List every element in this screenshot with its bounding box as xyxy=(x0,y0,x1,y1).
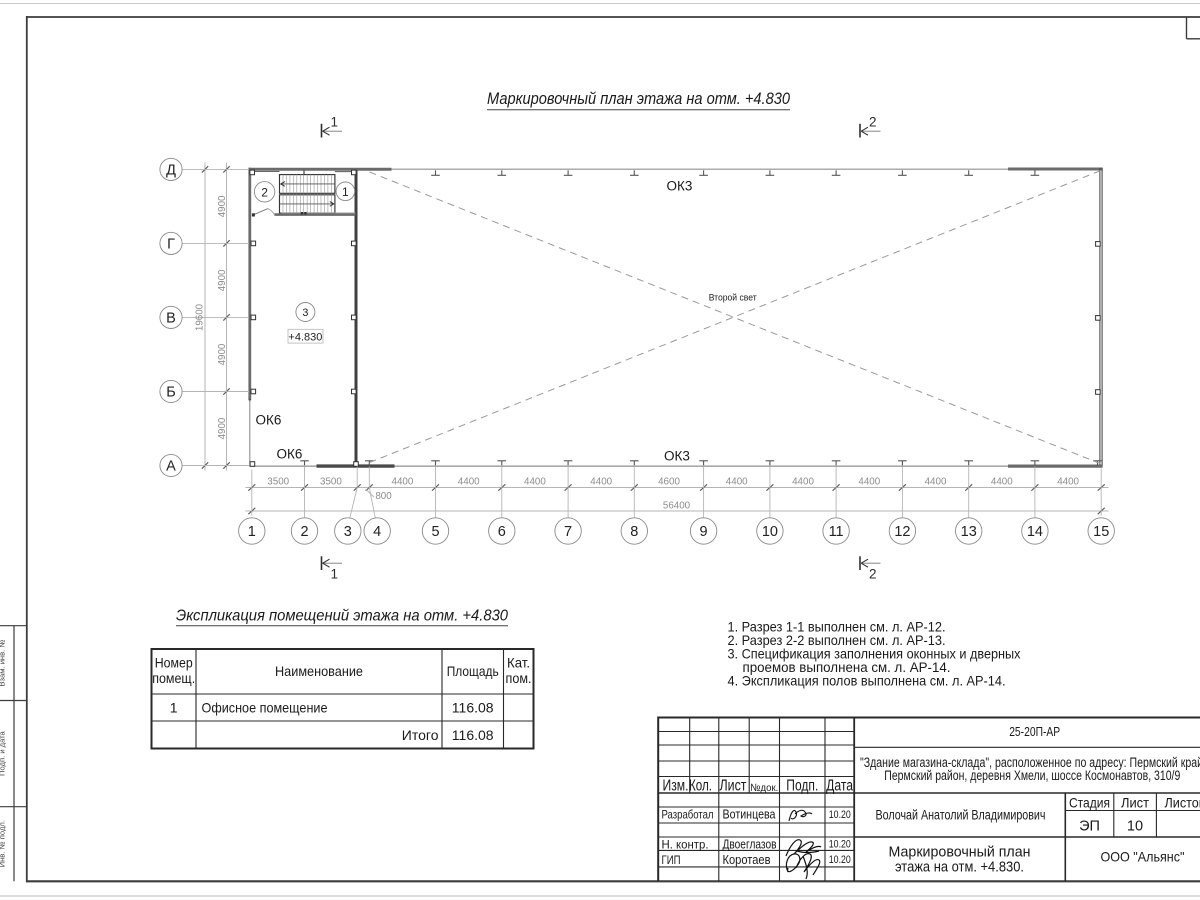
svg-text:4900: 4900 xyxy=(217,417,228,439)
svg-text:Офисное помещение: Офисное помещение xyxy=(202,700,328,716)
svg-text:Площадь: Площадь xyxy=(447,663,499,679)
svg-text:Вотинцева: Вотинцева xyxy=(723,807,777,822)
svg-text:4400: 4400 xyxy=(590,476,612,487)
svg-text:800: 800 xyxy=(375,491,392,502)
svg-text:Инв. № подл.: Инв. № подл. xyxy=(0,820,7,867)
svg-text:Изм.: Изм. xyxy=(663,777,689,794)
svg-text:4400: 4400 xyxy=(726,476,748,487)
svg-text:Волочай Анатолий Владимирович: Волочай Анатолий Владимирович xyxy=(876,807,1046,822)
svg-text:12: 12 xyxy=(894,524,910,540)
svg-text:4400: 4400 xyxy=(1057,476,1079,487)
svg-text:1: 1 xyxy=(248,524,256,540)
svg-text:10: 10 xyxy=(1127,819,1143,835)
svg-text:Экспликация помещений этажа на: Экспликация помещений этажа на отм. +4.8… xyxy=(176,608,508,625)
svg-text:№док.: №док. xyxy=(750,782,778,794)
svg-text:1: 1 xyxy=(342,185,349,199)
svg-text:4600: 4600 xyxy=(658,476,680,487)
svg-text:Разработал: Разработал xyxy=(662,808,714,822)
svg-text:4: 4 xyxy=(373,524,381,540)
svg-text:Б: Б xyxy=(166,385,176,401)
svg-text:4900: 4900 xyxy=(217,195,228,217)
svg-text:Дата: Дата xyxy=(826,777,853,794)
svg-text:4900: 4900 xyxy=(217,343,228,365)
svg-text:56400: 56400 xyxy=(663,500,691,511)
svg-text:этажа на отм. +4.830.: этажа на отм. +4.830. xyxy=(895,858,1024,875)
svg-text:4400: 4400 xyxy=(858,476,880,487)
svg-text:4400: 4400 xyxy=(524,476,546,487)
svg-text:4. Экспликация полов выполнена: 4. Экспликация полов выполнена см. л. АР… xyxy=(728,674,1006,689)
svg-text:Подп. и дата: Подп. и дата xyxy=(0,730,7,776)
svg-text:Г: Г xyxy=(167,237,175,253)
svg-text:Лист: Лист xyxy=(1121,794,1150,810)
svg-text:Наименование: Наименование xyxy=(275,663,363,679)
svg-text:116.08: 116.08 xyxy=(452,727,494,743)
svg-text:3: 3 xyxy=(302,307,308,319)
svg-text:4400: 4400 xyxy=(392,476,414,487)
svg-text:4400: 4400 xyxy=(925,476,947,487)
svg-text:4900: 4900 xyxy=(217,269,228,291)
svg-text:9: 9 xyxy=(700,524,708,540)
svg-text:4400: 4400 xyxy=(792,476,814,487)
svg-text:14: 14 xyxy=(1027,524,1043,540)
svg-text:3500: 3500 xyxy=(267,476,289,487)
svg-text:3: 3 xyxy=(344,524,352,540)
svg-text:116.08: 116.08 xyxy=(452,700,494,716)
svg-text:ОК6: ОК6 xyxy=(256,413,282,428)
svg-text:Подп.: Подп. xyxy=(786,777,818,794)
svg-text:1: 1 xyxy=(170,700,178,716)
svg-text:Двоеглазов: Двоеглазов xyxy=(723,837,777,852)
svg-text:7: 7 xyxy=(564,524,572,540)
svg-text:Н. контр.: Н. контр. xyxy=(662,837,709,851)
svg-text:1: 1 xyxy=(330,566,338,581)
svg-text:Кат.: Кат. xyxy=(507,656,530,671)
svg-text:2: 2 xyxy=(300,524,308,540)
svg-text:15: 15 xyxy=(1093,524,1109,540)
svg-text:ОК6: ОК6 xyxy=(277,446,303,461)
svg-text:3500: 3500 xyxy=(320,476,342,487)
svg-text:Пермский район, деревня Хмели,: Пермский район, деревня Хмели, шоссе Кос… xyxy=(884,768,1180,783)
svg-text:4400: 4400 xyxy=(991,476,1013,487)
svg-text:2: 2 xyxy=(869,115,877,130)
svg-text:2: 2 xyxy=(261,185,268,199)
svg-text:Листов: Листов xyxy=(1165,794,1200,810)
svg-text:ООО "Альянс": ООО "Альянс" xyxy=(1101,848,1185,864)
svg-text:Кол.: Кол. xyxy=(689,777,712,794)
svg-text:Маркировочный план этажа на от: Маркировочный план этажа на отм. +4.830 xyxy=(487,90,790,108)
svg-text:Второй свет: Второй свет xyxy=(709,292,758,302)
svg-text:4400: 4400 xyxy=(458,476,480,487)
svg-text:1: 1 xyxy=(330,115,338,130)
svg-text:Номер: Номер xyxy=(155,656,193,671)
svg-text:В: В xyxy=(166,311,176,327)
svg-text:13: 13 xyxy=(961,524,977,540)
svg-text:Коротаев: Коротаев xyxy=(723,852,771,867)
svg-text:10.20: 10.20 xyxy=(829,854,851,866)
svg-text:8: 8 xyxy=(630,524,638,540)
svg-text:2: 2 xyxy=(869,566,877,581)
svg-text:Взам. инв. №: Взам. инв. № xyxy=(0,639,7,686)
svg-text:10.20: 10.20 xyxy=(829,839,851,851)
svg-text:5: 5 xyxy=(431,524,439,540)
svg-text:Лист: Лист xyxy=(720,777,747,794)
svg-text:ОК3: ОК3 xyxy=(664,449,690,464)
svg-text:10: 10 xyxy=(762,524,778,540)
svg-text:А: А xyxy=(166,459,176,475)
svg-text:6: 6 xyxy=(498,524,506,540)
svg-text:ЭП: ЭП xyxy=(1079,819,1100,835)
svg-text:11: 11 xyxy=(829,524,844,540)
svg-text:25-20П-АР: 25-20П-АР xyxy=(1009,725,1060,739)
svg-text:+4.830: +4.830 xyxy=(288,332,322,344)
svg-text:10.20: 10.20 xyxy=(829,809,851,821)
svg-text:ГИП: ГИП xyxy=(662,853,681,867)
svg-text:пом.: пом. xyxy=(506,671,532,686)
svg-text:ОК3: ОК3 xyxy=(667,179,693,194)
svg-text:Итого: Итого xyxy=(402,727,439,743)
svg-text:Д: Д xyxy=(166,163,176,179)
svg-text:помещ.: помещ. xyxy=(152,671,195,686)
svg-text:Стадия: Стадия xyxy=(1069,794,1110,810)
svg-text:19600: 19600 xyxy=(195,303,206,331)
